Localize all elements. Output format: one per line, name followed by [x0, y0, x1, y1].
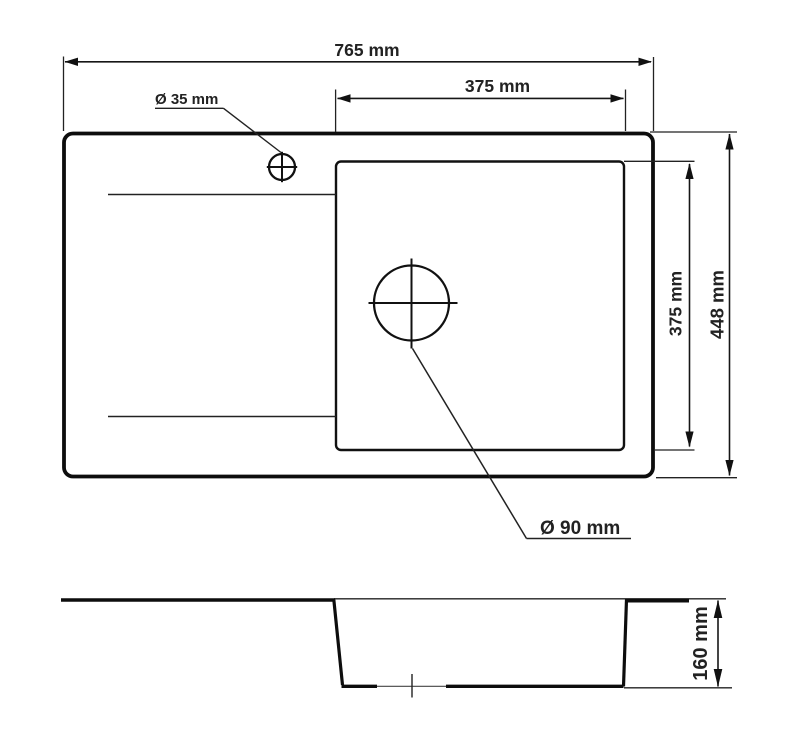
svg-text:160 mm: 160 mm	[690, 606, 712, 681]
svg-text:448 mm: 448 mm	[707, 270, 728, 339]
svg-text:Ø 90 mm: Ø 90 mm	[540, 518, 620, 539]
svg-text:375 mm: 375 mm	[666, 271, 686, 336]
svg-text:765 mm: 765 mm	[334, 40, 399, 60]
svg-text:Ø 35 mm: Ø 35 mm	[155, 91, 218, 108]
svg-text:375 mm: 375 mm	[465, 76, 530, 96]
